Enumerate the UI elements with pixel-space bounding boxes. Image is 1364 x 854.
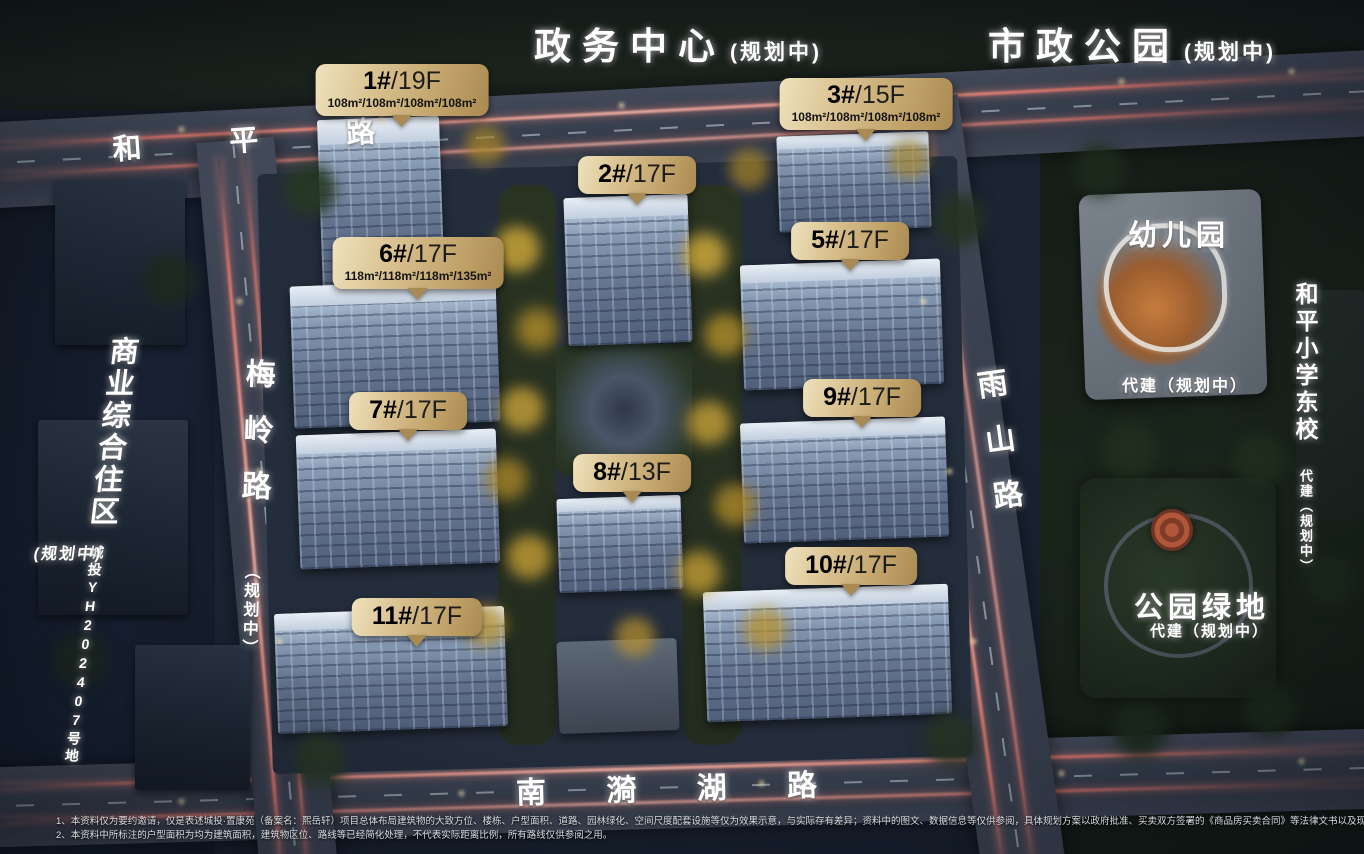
- building-floors: /17F: [626, 160, 676, 188]
- callout-tail: [840, 259, 860, 271]
- callout-tail: [622, 491, 642, 503]
- building-5-render: [740, 259, 944, 391]
- building-number: 2#: [598, 160, 626, 188]
- header-municipal-park: 市政公园(规划中): [988, 16, 1276, 70]
- callout-building-2: 2#/17F: [578, 156, 696, 205]
- school-title: 和平小学东校: [1292, 282, 1318, 444]
- building-floors: /17F: [847, 551, 897, 579]
- callout-building-3: 3#/15F 108m²/108m²/108m²/108m²: [780, 78, 953, 141]
- building-floors: /17F: [407, 240, 457, 268]
- callout-tail: [408, 288, 428, 300]
- building-9-render: [740, 416, 949, 543]
- callout-building-11: 11#/17F: [352, 598, 482, 647]
- building-number: 10#: [805, 551, 847, 579]
- callout-building-7: 7#/17F: [349, 392, 467, 441]
- building-number: 7#: [369, 396, 397, 424]
- building-areas: 118m²/118m²/118m²/135m²: [345, 269, 492, 283]
- callout-tail: [627, 193, 647, 205]
- building-floors: /13F: [621, 458, 671, 486]
- building-areas: 108m²/108m²/108m²/108m²: [328, 96, 477, 110]
- callout-building-6: 6#/17F 118m²/118m²/118m²/135m²: [333, 237, 504, 300]
- building-7-render: [296, 429, 501, 570]
- disclaimer-line-2: 2、本资料中所标注的户型面积为均为建筑面积，建筑物区位、路线等已经简化处理，不代…: [56, 829, 1346, 843]
- disclaimer: 1、本资料仅为要约邀请，仅是表述城投·置康苑（备案名：熙岳轩）项目总体布局建筑物…: [56, 814, 1346, 843]
- callout-building-10: 10#/17F: [785, 547, 917, 596]
- building-2-render: [563, 194, 692, 346]
- meiling-road-status: （规划中）: [239, 563, 259, 659]
- garden-band-west: [498, 185, 556, 745]
- government-center-label: 政务中心: [534, 26, 726, 67]
- building-floors: /19F: [391, 67, 441, 95]
- callout-tail: [841, 584, 861, 596]
- building-floors: /17F: [839, 226, 889, 254]
- street-lights: [0, 0, 3, 3]
- clubhouse-render: [556, 638, 679, 734]
- dark-trees: [0, 0, 40, 40]
- kindergarten-label: 幼儿园: [1128, 212, 1230, 254]
- aerial-site-plan: 政务中心(规划中) 市政公园(规划中) 和 平 路 梅岭路 （规划中） 雨山路 …: [0, 0, 1364, 854]
- callout-building-1: 1#/19F 108m²/108m²/108m²/108m²: [316, 64, 489, 127]
- building-10-render: [703, 584, 952, 722]
- offsite-building: [55, 180, 185, 345]
- municipal-park-label: 市政公园: [988, 26, 1180, 67]
- school-status: 代建（规划中）: [1298, 469, 1313, 574]
- header-government-center: 政务中心(规划中): [534, 16, 822, 70]
- building-number: 5#: [811, 226, 839, 254]
- government-center-status: (规划中): [730, 41, 822, 64]
- callout-tail: [852, 416, 872, 428]
- building-number: 6#: [379, 240, 407, 268]
- building-3-render: [776, 131, 931, 232]
- callout-building-8: 8#/13F: [573, 454, 691, 503]
- building-areas: 108m²/108m²/108m²/108m²: [792, 110, 941, 124]
- building-floors: /15F: [855, 81, 905, 109]
- building-floors: /17F: [851, 383, 901, 411]
- building-number: 1#: [363, 67, 391, 95]
- road-label-nanyihu: 南 漪 湖 路: [515, 760, 843, 813]
- building-8-render: [556, 495, 683, 593]
- building-number: 3#: [827, 81, 855, 109]
- callout-tail: [392, 115, 412, 127]
- park-status: 代建（规划中）: [1150, 620, 1269, 641]
- disclaimer-text-1: 1、本资料仅为要约邀请，仅是表述城投·置康苑（备案名：熙岳轩）项目总体布局建筑物…: [56, 816, 1364, 827]
- building-number: 9#: [823, 383, 851, 411]
- building-number: 8#: [593, 458, 621, 486]
- kindergarten-status: 代建（规划中）: [1122, 372, 1248, 396]
- offsite-building: [135, 645, 250, 790]
- disclaimer-line-1: 1、本资料仅为要约邀请，仅是表述城投·置康苑（备案名：熙岳轩）项目总体布局建筑物…: [56, 814, 1346, 829]
- callout-tail: [398, 429, 418, 441]
- municipal-park-status: (规划中): [1184, 41, 1276, 64]
- callout-tail: [407, 635, 427, 647]
- school-annotation: 和平小学东校 代建（规划中）: [1288, 282, 1322, 574]
- meiling-road-text: 梅岭路: [235, 358, 274, 527]
- callout-building-5: 5#/17F: [791, 222, 909, 271]
- callout-building-9: 9#/17F: [803, 379, 921, 428]
- west-parcel-status: (规划中): [32, 540, 104, 564]
- building-floors: /17F: [412, 602, 462, 630]
- building-floors: /17F: [397, 396, 447, 424]
- callout-tail: [856, 129, 876, 141]
- building-number: 11#: [372, 602, 412, 630]
